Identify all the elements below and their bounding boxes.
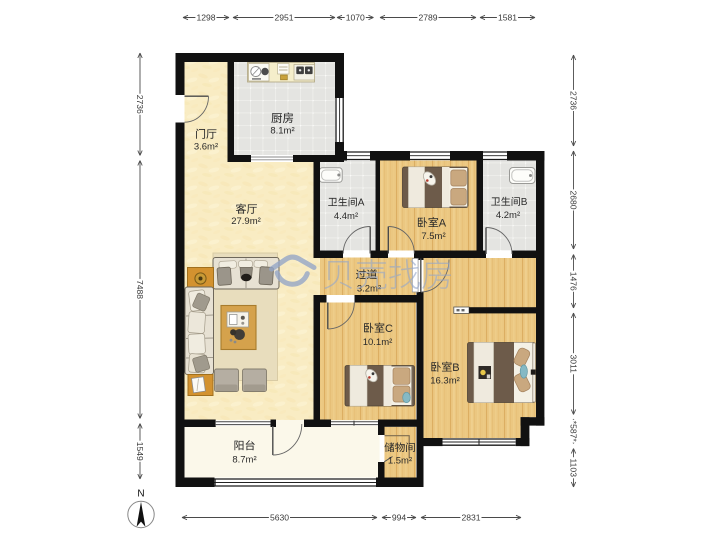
svg-text:16.3m²: 16.3m² — [430, 375, 460, 386]
svg-text:C: C — [385, 323, 393, 335]
svg-text:B: B — [521, 197, 528, 208]
svg-text:2736: 2736 — [135, 95, 145, 114]
svg-text:1549: 1549 — [135, 442, 145, 461]
svg-text:1476: 1476 — [569, 272, 579, 291]
svg-text:1.5m²: 1.5m² — [388, 455, 412, 466]
svg-text:3.6m²: 3.6m² — [194, 141, 218, 152]
svg-text:7.5m²: 7.5m² — [421, 231, 445, 242]
svg-text:2831: 2831 — [461, 513, 480, 523]
svg-text:1298: 1298 — [196, 13, 215, 23]
svg-text:994: 994 — [392, 513, 407, 523]
svg-text:2951: 2951 — [274, 13, 293, 23]
svg-text:2680: 2680 — [569, 190, 579, 209]
svg-text:4.4m²: 4.4m² — [334, 211, 358, 222]
svg-text:2736: 2736 — [569, 91, 579, 110]
svg-text:1581: 1581 — [498, 13, 517, 23]
svg-text:A: A — [358, 198, 365, 209]
svg-text:2789: 2789 — [418, 13, 437, 23]
svg-text:1103: 1103 — [569, 459, 579, 478]
svg-text:1070: 1070 — [346, 13, 365, 23]
svg-text:N: N — [137, 489, 144, 500]
svg-text:5630: 5630 — [270, 513, 289, 523]
svg-text:27.9m²: 27.9m² — [231, 216, 261, 227]
svg-text:10.1m²: 10.1m² — [363, 337, 393, 348]
svg-text:A: A — [439, 217, 447, 229]
svg-text:B: B — [452, 362, 459, 374]
svg-text:3011: 3011 — [569, 355, 579, 374]
svg-text:8.7m²: 8.7m² — [232, 454, 256, 465]
svg-text:*587*: *587* — [569, 421, 579, 443]
svg-text:4.2m²: 4.2m² — [496, 210, 520, 221]
svg-text:8.1m²: 8.1m² — [270, 125, 294, 136]
svg-text:7488: 7488 — [135, 280, 145, 299]
